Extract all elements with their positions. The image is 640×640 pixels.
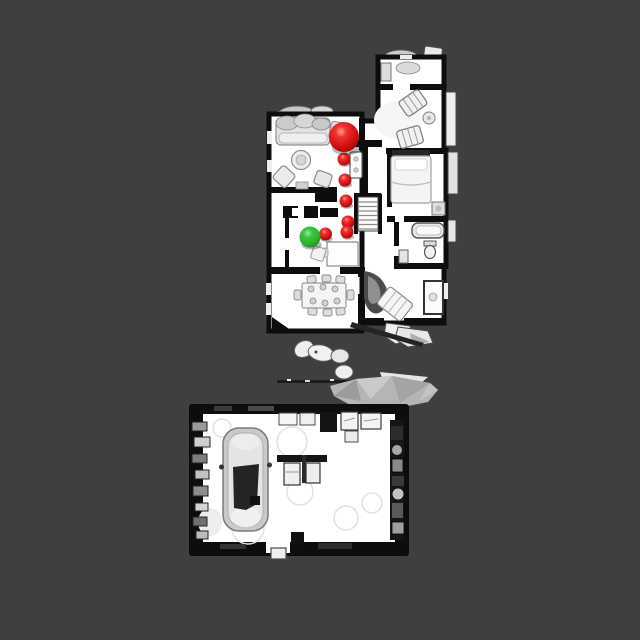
bath-sink (399, 250, 408, 263)
render-viewport (0, 0, 640, 640)
car-topview (219, 428, 272, 531)
topdown-scene (0, 0, 640, 640)
right-wall-shelves (390, 420, 404, 540)
hall-cabinet (350, 152, 362, 178)
tv-console (296, 182, 308, 189)
waypoint-sphere (341, 226, 354, 239)
dark-doorway (320, 412, 337, 432)
scan-fragments (277, 322, 438, 408)
waypoint-sphere (340, 195, 353, 208)
garage (189, 404, 409, 559)
goal-sphere (329, 122, 359, 152)
waypoint-sphere (339, 174, 352, 187)
staircase (358, 197, 378, 231)
car-mirror-left (219, 465, 224, 470)
kitchen-island (327, 242, 358, 266)
waypoint-sphere (319, 228, 332, 241)
toilet-bowl (425, 246, 436, 259)
exterior-strip-mid (448, 152, 458, 194)
car-mirror-right (267, 463, 272, 468)
house-floorplan (266, 46, 458, 331)
agent-sphere (300, 227, 321, 248)
exterior-strip-lower (448, 220, 456, 242)
stair-debris-elbow (291, 337, 353, 379)
exterior-strip-upper (446, 92, 456, 146)
workbench (277, 455, 327, 485)
dresser (381, 63, 391, 81)
water-heater (271, 548, 286, 559)
